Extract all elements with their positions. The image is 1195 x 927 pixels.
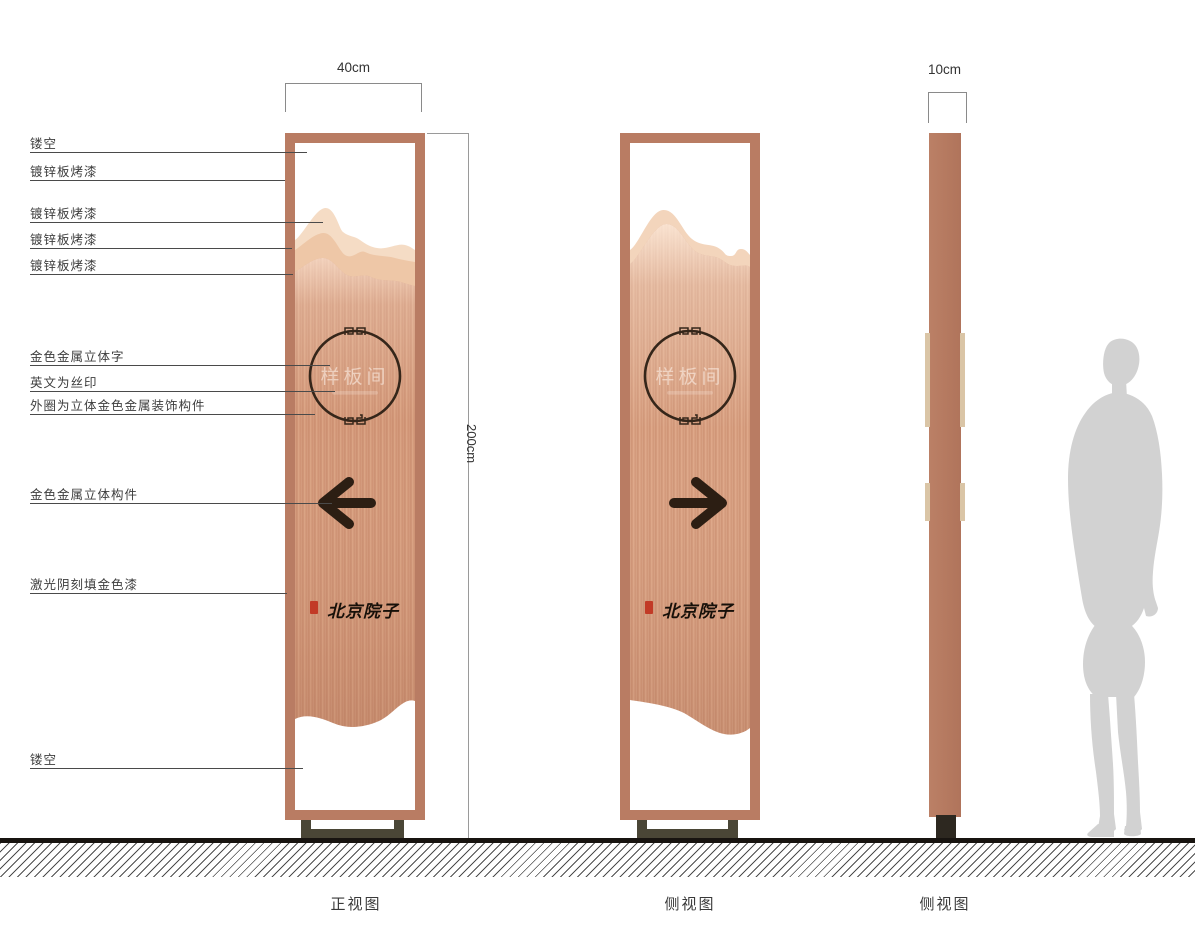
annotation-label: 金色金属立体字 bbox=[30, 346, 125, 365]
dimension-side-depth-label: 10cm bbox=[928, 62, 961, 77]
human-scale-silhouette bbox=[1040, 336, 1180, 838]
annotation-label: 激光阴刻填金色漆 bbox=[30, 574, 138, 593]
panel-body-shading bbox=[295, 258, 415, 727]
annotation-leader-line bbox=[30, 365, 330, 366]
sign-front-panel: 样板间 北京院子 bbox=[295, 143, 415, 810]
annotation-leader-line bbox=[30, 414, 315, 415]
dimension-side-depth-bracket bbox=[928, 92, 967, 123]
profile-circle-protrusion bbox=[925, 333, 930, 427]
annotation-label: 镀锌板烤漆 bbox=[30, 229, 98, 248]
annotation-label: 镀锌板烤漆 bbox=[30, 203, 98, 222]
brand-text: 北京院子 bbox=[327, 602, 400, 622]
annotation-label: 镀锌板烤漆 bbox=[30, 255, 98, 274]
annotation-label: 镂空 bbox=[30, 133, 57, 152]
profile-arrow-protrusion bbox=[960, 483, 965, 521]
seal-stamp-icon bbox=[310, 601, 318, 614]
sign-front-base bbox=[301, 820, 404, 838]
panel-body-shading bbox=[630, 224, 750, 735]
sign-profile-bar bbox=[929, 133, 961, 817]
english-silkscreen-caption bbox=[332, 391, 378, 395]
view-label-side-profile: 侧视图 bbox=[919, 893, 970, 914]
annotation-label: 镀锌板烤漆 bbox=[30, 161, 98, 180]
view-label-front: 正视图 bbox=[330, 893, 381, 914]
annotation-leader-line bbox=[30, 248, 292, 249]
profile-circle-protrusion bbox=[960, 333, 965, 427]
annotation-leader-line bbox=[30, 503, 332, 504]
annotation-leader-line bbox=[30, 768, 303, 769]
annotation-leader-line bbox=[30, 593, 287, 594]
dimension-front-width-label: 40cm bbox=[337, 60, 370, 75]
design-drawing-canvas: 40cm 10cm 200cm bbox=[0, 0, 1195, 927]
sign-back-view: 样板间 北京院子 bbox=[620, 133, 760, 820]
profile-arrow-protrusion bbox=[925, 483, 930, 521]
dimension-height-tick bbox=[427, 133, 469, 134]
annotation-leader-line bbox=[30, 274, 293, 275]
seal-stamp-icon bbox=[645, 601, 653, 614]
ground-hatching bbox=[0, 843, 1195, 877]
plaque-text: 样板间 bbox=[320, 366, 389, 388]
annotation-leader-line bbox=[30, 152, 307, 153]
english-silkscreen-caption bbox=[667, 391, 713, 395]
plaque-text: 样板间 bbox=[655, 366, 724, 388]
annotation-label: 金色金属立体构件 bbox=[30, 484, 138, 503]
dimension-height-line bbox=[468, 133, 469, 838]
dimension-front-width-bracket bbox=[285, 83, 422, 112]
annotation-label: 外圈为立体金色金属装饰构件 bbox=[30, 395, 206, 414]
dimension-height-label: 200cm bbox=[464, 424, 479, 463]
sign-front-view: 样板间 北京院子 bbox=[285, 133, 425, 820]
annotation-leader-line bbox=[30, 222, 323, 223]
annotation-label: 镂空 bbox=[30, 749, 57, 768]
sign-profile-foot bbox=[936, 815, 956, 838]
annotation-leader-line bbox=[30, 180, 285, 181]
sign-back-panel: 样板间 北京院子 bbox=[630, 143, 750, 810]
sign-back-base bbox=[637, 820, 738, 838]
brand-text: 北京院子 bbox=[662, 602, 735, 622]
annotation-label: 英文为丝印 bbox=[30, 372, 98, 391]
view-label-side-back: 侧视图 bbox=[664, 893, 715, 914]
annotation-leader-line bbox=[30, 391, 335, 392]
